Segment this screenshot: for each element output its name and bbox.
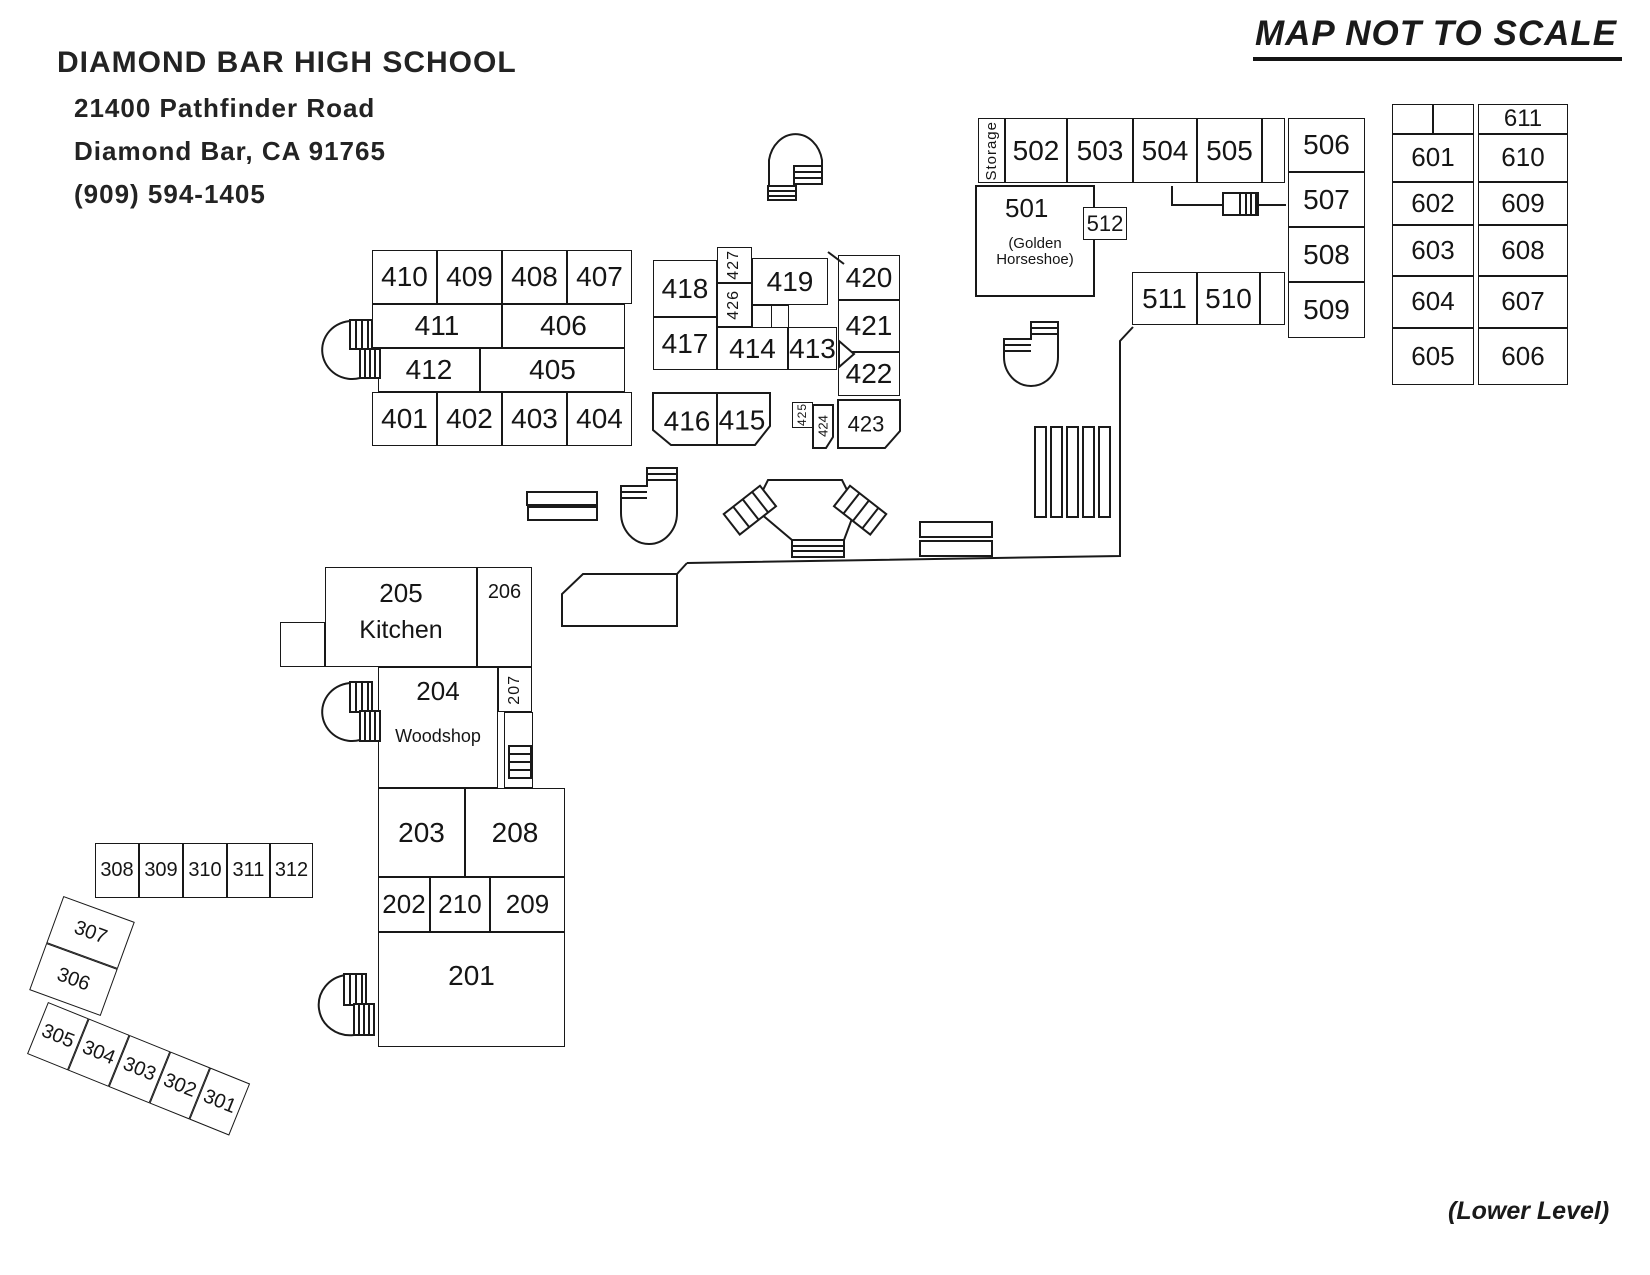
room-427-label: 427 (726, 250, 743, 280)
room-426: 426 (717, 283, 752, 327)
blank-cell (771, 305, 789, 328)
room-404: 404 (567, 392, 632, 446)
school-title-block: DIAMOND BAR HIGH SCHOOL 21400 Pathfinder… (57, 46, 517, 222)
woodshop-label: Woodshop (395, 727, 481, 746)
room-607: 607 (1478, 276, 1568, 328)
room-208: 208 (465, 788, 565, 877)
room-410: 410 (372, 250, 437, 304)
room-511: 511 (1132, 272, 1197, 325)
room-609: 609 (1478, 182, 1568, 225)
lower-level-note: (Lower Level) (1448, 1197, 1609, 1226)
room-606: 606 (1478, 328, 1568, 385)
planter-bars-icon (1035, 427, 1110, 517)
bench-icon (527, 492, 597, 520)
room-209: 209 (490, 877, 565, 932)
room-426-label: 426 (726, 290, 743, 320)
room-510: 510 (1197, 272, 1260, 325)
room-506: 506 (1288, 118, 1365, 172)
room-424: 424 (813, 405, 833, 448)
building-306-307: 307 306 (29, 896, 135, 1016)
room-416-label: 416 (664, 406, 711, 437)
kitchen-annex (280, 622, 325, 667)
room-401: 401 (372, 392, 437, 446)
room-413: 413 (788, 327, 837, 370)
room-406: 406 (502, 304, 625, 348)
school-address-line2: Diamond Bar, CA 91765 (57, 136, 517, 167)
campus-map: DIAMOND BAR HIGH SCHOOL 21400 Pathfinder… (0, 0, 1650, 1275)
room-310: 310 (183, 843, 227, 898)
room-storage: Storage (978, 118, 1005, 183)
stairwell-icon (322, 682, 380, 741)
room-205-label: 205 (379, 580, 422, 607)
stairwell-icon (621, 468, 677, 544)
stairwell-icon (768, 134, 822, 200)
kitchen-label: Kitchen (359, 617, 442, 643)
room-420: 420 (838, 255, 900, 300)
three-way-bench-icon (724, 480, 887, 557)
room-507: 507 (1288, 172, 1365, 227)
stairs-icon (1223, 193, 1258, 215)
room-207: 207 (498, 667, 532, 712)
room-425-label: 425 (796, 403, 809, 426)
room-206: 206 (477, 567, 532, 667)
blank-cell (1260, 272, 1285, 325)
room-502: 502 (1005, 118, 1067, 183)
room-204-label: 204 (416, 678, 459, 705)
room-403: 403 (502, 392, 567, 446)
room-412: 412 (378, 348, 480, 392)
room-405: 405 (480, 348, 625, 392)
room-421: 421 (838, 300, 900, 352)
room-504: 504 (1133, 118, 1197, 183)
room-611: 611 (1478, 104, 1568, 134)
bench-icon (920, 522, 992, 556)
room-610: 610 (1478, 134, 1568, 182)
room-424-label: 424 (816, 415, 831, 437)
room-603: 603 (1392, 225, 1474, 276)
room-605: 605 (1392, 328, 1474, 385)
room-415: 415 (717, 393, 770, 445)
school-name: DIAMOND BAR HIGH SCHOOL (57, 46, 517, 80)
room-509: 509 (1288, 282, 1365, 338)
room-402: 402 (437, 392, 502, 446)
stairwell-icon (1004, 322, 1058, 386)
room-415-label: 415 (719, 405, 766, 436)
walkway-walls (562, 186, 1286, 626)
room-408: 408 (502, 250, 567, 304)
stairwell-icon (319, 974, 374, 1035)
blank-cell (752, 305, 773, 328)
room-311: 311 (227, 843, 270, 898)
room-308: 308 (95, 843, 139, 898)
room-422: 422 (838, 352, 900, 396)
room-423: 423 (838, 400, 900, 448)
room-416: 416 (653, 393, 717, 445)
school-address-line1: 21400 Pathfinder Road (57, 93, 517, 124)
blank-cell (1433, 104, 1474, 134)
golden-horseshoe-label: (Golden Horseshoe) (983, 236, 1087, 268)
room-503: 503 (1067, 118, 1133, 183)
room-508: 508 (1288, 227, 1365, 282)
room-409: 409 (437, 250, 502, 304)
school-phone: (909) 594-1405 (57, 179, 517, 210)
room-501-golden-horseshoe: 501 (Golden Horseshoe) (975, 185, 1095, 297)
room-604: 604 (1392, 276, 1474, 328)
room-207-label: 207 (507, 675, 524, 705)
room-425: 425 (792, 402, 813, 428)
stair-shaft (504, 712, 533, 788)
room-205-kitchen: 205 Kitchen (325, 567, 477, 667)
room-501-label: 501 (977, 195, 1048, 222)
room-608: 608 (1478, 225, 1568, 276)
blank-cell (1262, 118, 1285, 183)
room-407: 407 (567, 250, 632, 304)
building-301-305: 305 304 303 302 301 (27, 1002, 250, 1136)
room-312: 312 (270, 843, 313, 898)
room-414: 414 (717, 327, 788, 370)
map-not-to-scale-note: MAP NOT TO SCALE (1253, 14, 1622, 61)
room-419: 419 (752, 258, 828, 305)
room-427: 427 (717, 247, 752, 283)
room-512: 512 (1083, 207, 1127, 240)
room-423-label: 423 (848, 412, 885, 437)
room-203: 203 (378, 788, 465, 877)
room-202: 202 (378, 877, 430, 932)
room-411: 411 (372, 304, 502, 348)
room-601: 601 (1392, 134, 1474, 182)
room-210: 210 (430, 877, 490, 932)
room-204-woodshop: 204 Woodshop (378, 667, 498, 788)
room-201: 201 (378, 932, 565, 1047)
room-418: 418 (653, 260, 717, 317)
room-505: 505 (1197, 118, 1262, 183)
room-309: 309 (139, 843, 183, 898)
room-417: 417 (653, 317, 717, 370)
blank-cell (1392, 104, 1433, 134)
storage-label: Storage (984, 121, 1000, 181)
room-602: 602 (1392, 182, 1474, 225)
